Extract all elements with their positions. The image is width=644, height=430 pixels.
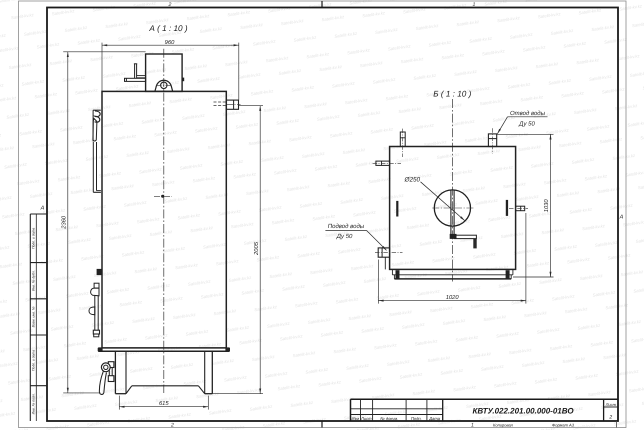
svg-text:Отвод воды: Отвод воды — [510, 110, 546, 117]
svg-text:№ докум.: № докум. — [380, 416, 398, 421]
svg-text:Формат А3: Формат А3 — [552, 423, 575, 428]
svg-text:Копировал: Копировал — [493, 423, 514, 428]
svg-text:Ду 50: Ду 50 — [336, 233, 353, 240]
svg-text:2: 2 — [170, 422, 174, 428]
svg-text:Взам. инв. №: Взам. инв. № — [31, 306, 35, 327]
svg-text:Лист: Лист — [605, 402, 617, 407]
svg-text:А: А — [619, 215, 624, 221]
svg-text:1020: 1020 — [446, 294, 460, 301]
svg-text:Ду 50: Ду 50 — [518, 120, 535, 127]
svg-text:1: 1 — [471, 422, 474, 428]
svg-text:А: А — [40, 206, 45, 212]
svg-text:615: 615 — [159, 400, 169, 407]
svg-text:Инв. № подл.: Инв. № подл. — [31, 393, 35, 414]
svg-text:Подвод воды: Подвод воды — [328, 223, 365, 230]
svg-text:Подп. и дата: Подп. и дата — [31, 228, 35, 249]
svg-text:Лист: Лист — [360, 416, 372, 421]
svg-text:Изм: Изм — [352, 416, 360, 421]
svg-text:А ( 1 : 10 ): А ( 1 : 10 ) — [148, 24, 187, 33]
svg-text:2: 2 — [608, 415, 612, 421]
svg-text:Б ( 1 : 10 ): Б ( 1 : 10 ) — [433, 89, 471, 98]
svg-text:Подп.: Подп. — [411, 416, 422, 421]
svg-text:960: 960 — [165, 39, 175, 46]
svg-text:Дата: Дата — [428, 416, 441, 421]
svg-text:2005: 2005 — [253, 241, 260, 256]
svg-text:2360: 2360 — [61, 215, 68, 230]
svg-text:2: 2 — [168, 2, 172, 8]
svg-text:КВТУ.022.201.00.000-01ВО: КВТУ.022.201.00.000-01ВО — [472, 407, 574, 416]
svg-text:1030: 1030 — [543, 199, 550, 213]
svg-text:Инв. № дубл.: Инв. № дубл. — [31, 270, 35, 291]
svg-text:1: 1 — [473, 2, 476, 8]
svg-text:Ø250: Ø250 — [403, 176, 420, 183]
svg-text:Подп. и дата: Подп. и дата — [31, 350, 35, 371]
